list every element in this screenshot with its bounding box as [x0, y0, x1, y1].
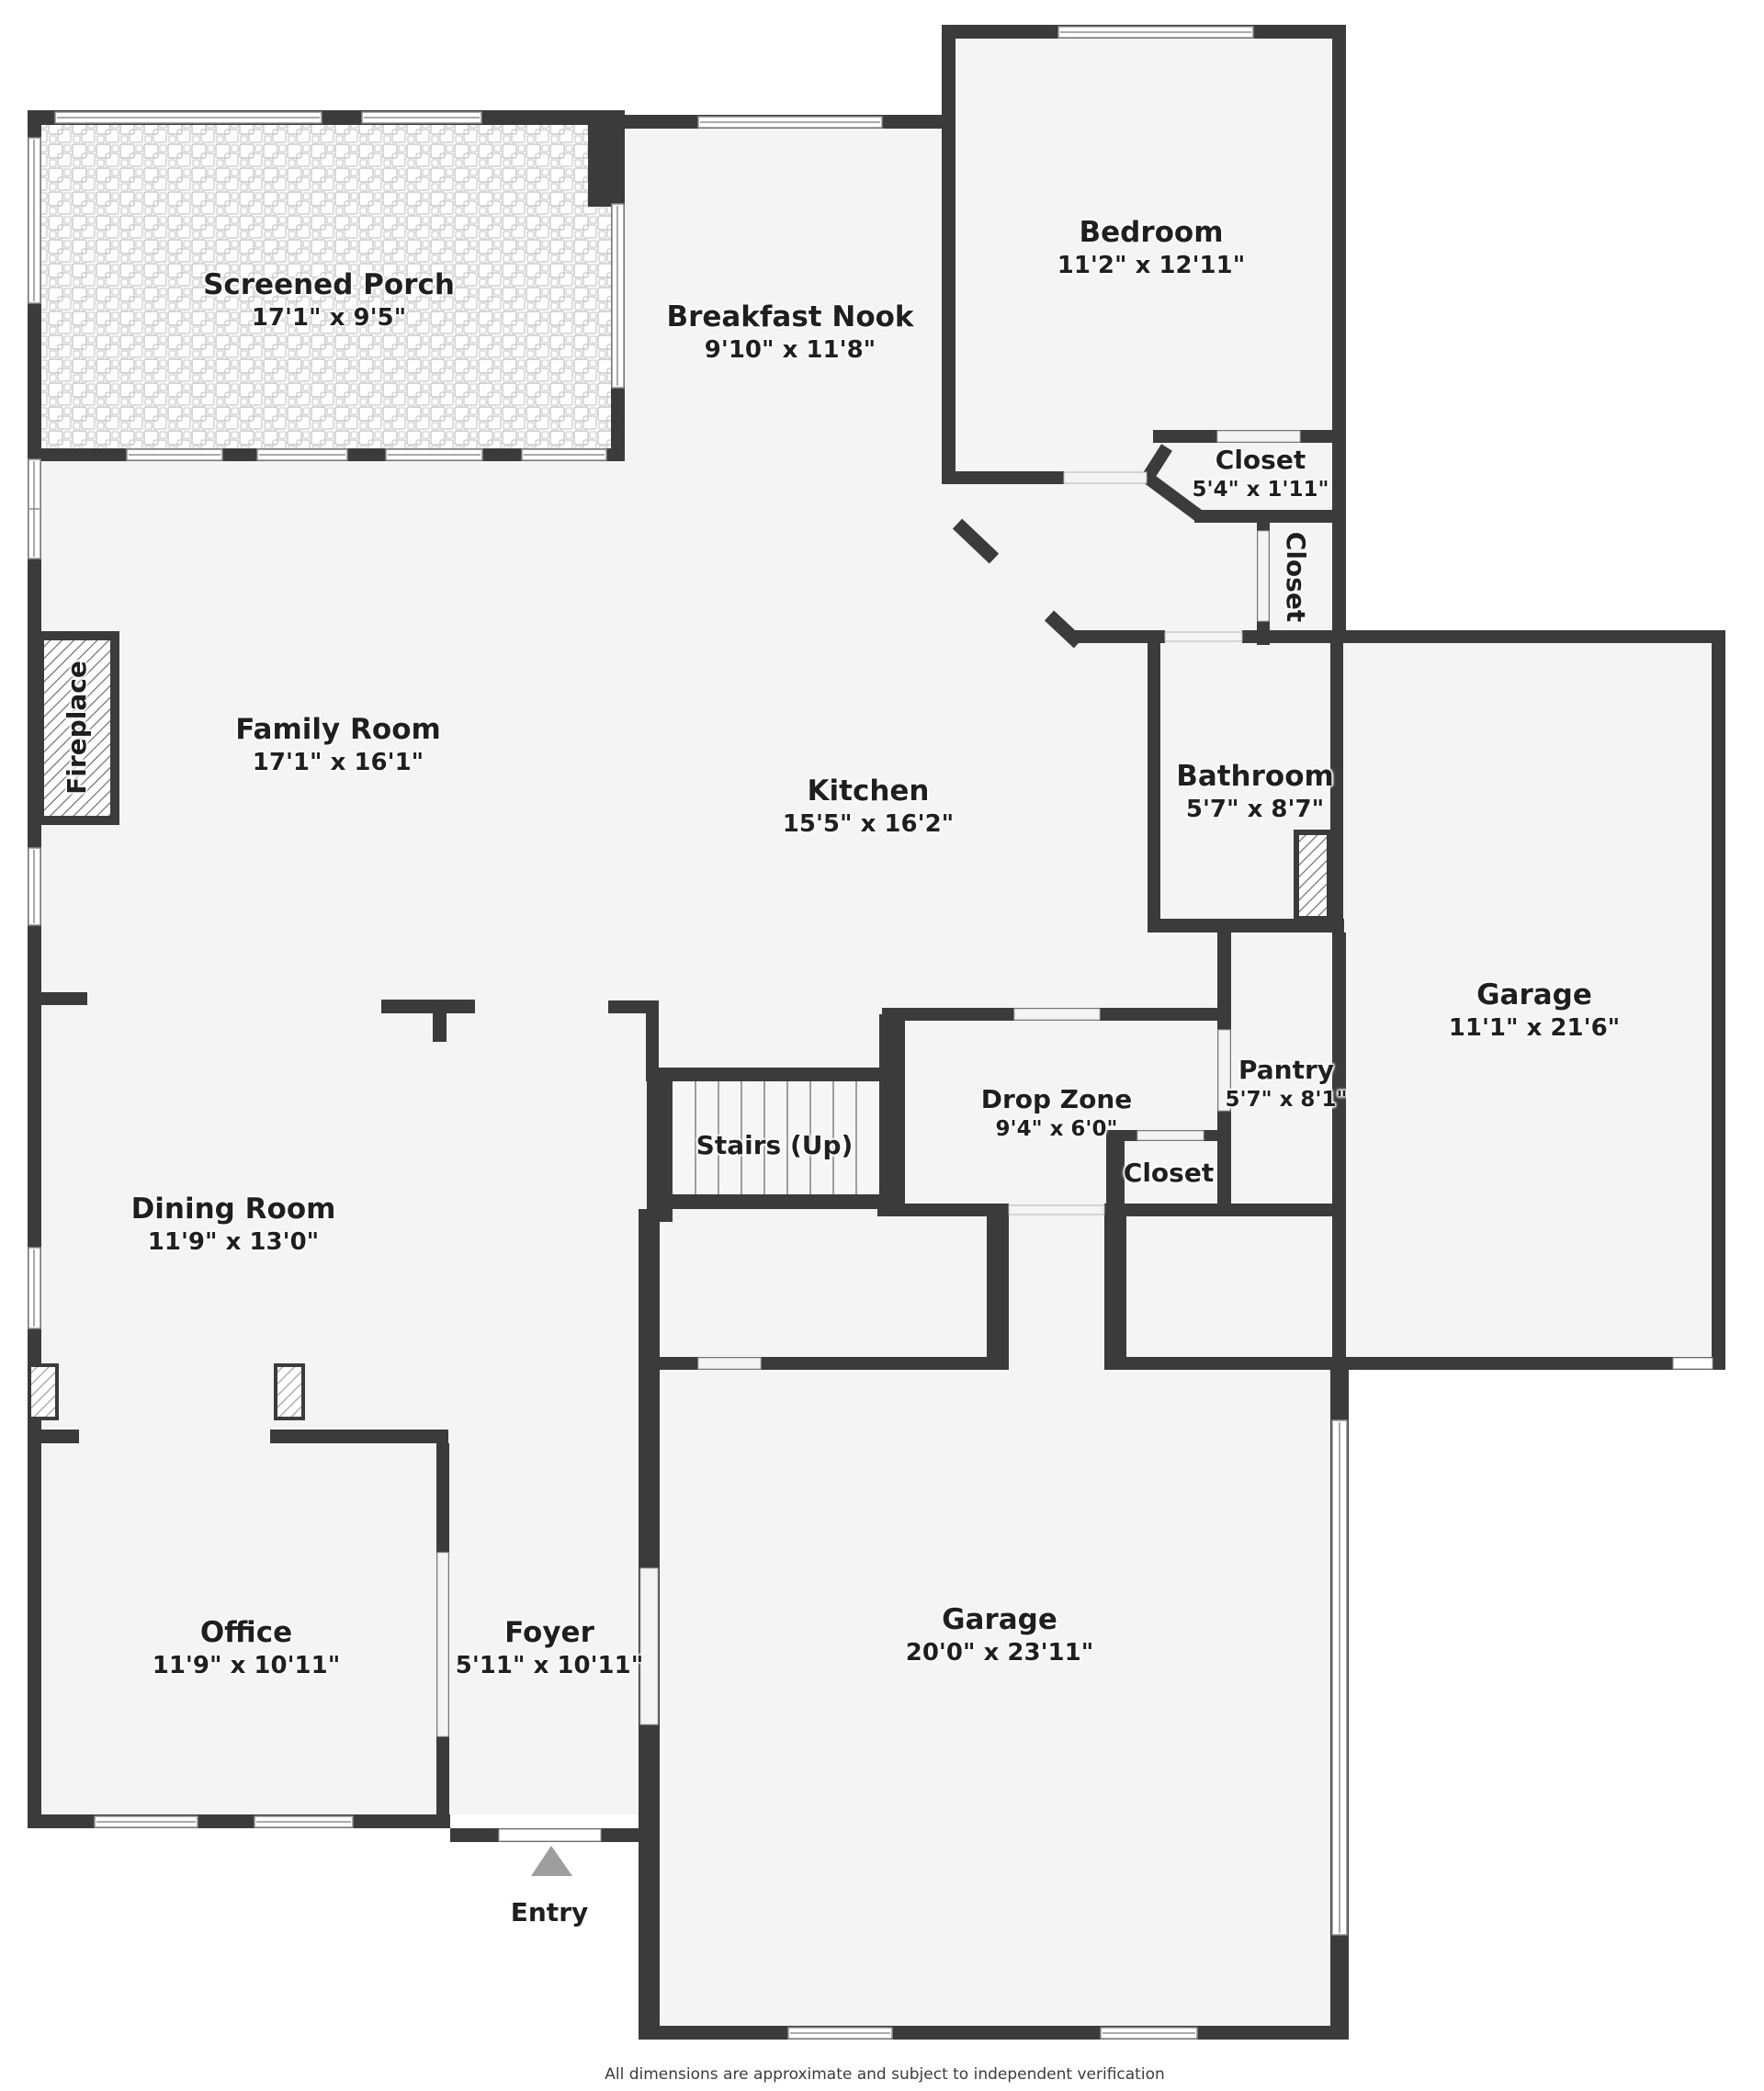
room-dims: 5'11" x 10'11"	[456, 1651, 644, 1682]
room-name: Breakfast Nook	[666, 299, 913, 335]
room-label-office: Office 11'9" x 10'11"	[153, 1614, 341, 1682]
room-dims: 17'1" x 16'1"	[235, 748, 441, 779]
room-dims: 5'7" x 8'1"	[1226, 1087, 1348, 1114]
room-dims: 11'1" x 21'6"	[1449, 1013, 1620, 1045]
room-name: Closet	[1193, 444, 1329, 477]
room-label-bathroom: Bathroom 5'7" x 8'7"	[1176, 758, 1334, 826]
room-label-family-room: Family Room 17'1" x 16'1"	[235, 711, 441, 779]
room-name: Foyer	[456, 1614, 644, 1651]
room-name: Screened Porch	[203, 266, 455, 303]
room-dims: 11'2" x 12'11"	[1057, 251, 1246, 282]
room-name: Office	[153, 1614, 341, 1651]
room-name: Family Room	[235, 711, 441, 748]
room-dims: 15'5" x 16'2"	[783, 809, 954, 841]
room-dims: 17'1" x 9'5"	[203, 303, 455, 334]
room-label-drop-zone: Drop Zone 9'4" x 6'0"	[981, 1083, 1133, 1144]
room-label-hall-closet-lower: Closet	[1124, 1157, 1214, 1190]
entry-arrow-icon	[531, 1846, 572, 1876]
room-label-stairs: Stairs (Up)	[696, 1129, 854, 1162]
room-name: Pantry	[1226, 1054, 1348, 1087]
room-dims: 5'7" x 8'7"	[1176, 795, 1334, 826]
room-name: Bathroom	[1176, 758, 1334, 795]
room-label-garage-side: Garage 11'1" x 21'6"	[1449, 977, 1620, 1045]
room-name: Drop Zone	[981, 1083, 1133, 1116]
room-label-kitchen: Kitchen 15'5" x 16'2"	[783, 773, 954, 841]
room-label-breakfast-nook: Breakfast Nook 9'10" x 11'8"	[666, 299, 913, 367]
room-label-dining-room: Dining Room 11'9" x 13'0"	[131, 1191, 336, 1259]
bathroom-fixture	[1294, 830, 1332, 921]
room-label-hall-closet-upper: Closet	[1279, 532, 1312, 622]
room-name: Stairs (Up)	[696, 1129, 854, 1162]
room-label-bedroom-closet: Closet 5'4" x 1'11"	[1193, 444, 1329, 504]
floor-plan: Screened Porch 17'1" x 9'5" Breakfast No…	[0, 0, 1764, 2091]
room-label-entry: Entry	[511, 1896, 589, 1929]
room-name: Fireplace	[61, 661, 94, 795]
room-label-foyer: Foyer 5'11" x 10'11"	[456, 1614, 644, 1682]
disclaimer-text: All dimensions are approximate and subje…	[605, 2065, 1165, 2084]
room-label-garage-main: Garage 20'0" x 23'11"	[906, 1601, 1094, 1669]
room-dims: 5'4" x 1'11"	[1193, 477, 1329, 504]
room-name: Entry	[511, 1896, 589, 1929]
room-name: Garage	[1449, 977, 1620, 1013]
room-name: Closet	[1279, 532, 1312, 622]
room-label-pantry: Pantry 5'7" x 8'1"	[1226, 1054, 1348, 1114]
room-label-fireplace: Fireplace	[61, 661, 94, 795]
room-label-screened-porch: Screened Porch 17'1" x 9'5"	[203, 266, 455, 334]
room-dims: 11'9" x 13'0"	[131, 1227, 336, 1259]
room-dims: 20'0" x 23'11"	[906, 1638, 1094, 1669]
room-name: Kitchen	[783, 773, 954, 809]
room-label-bedroom: Bedroom 11'2" x 12'11"	[1057, 214, 1246, 282]
room-name: Dining Room	[131, 1191, 336, 1227]
room-dims: 9'4" x 6'0"	[981, 1116, 1133, 1144]
room-dims: 9'10" x 11'8"	[666, 335, 913, 367]
room-name: Garage	[906, 1601, 1094, 1638]
room-name: Closet	[1124, 1157, 1214, 1190]
room-dims: 11'9" x 10'11"	[153, 1651, 341, 1682]
room-name: Bedroom	[1057, 214, 1246, 251]
